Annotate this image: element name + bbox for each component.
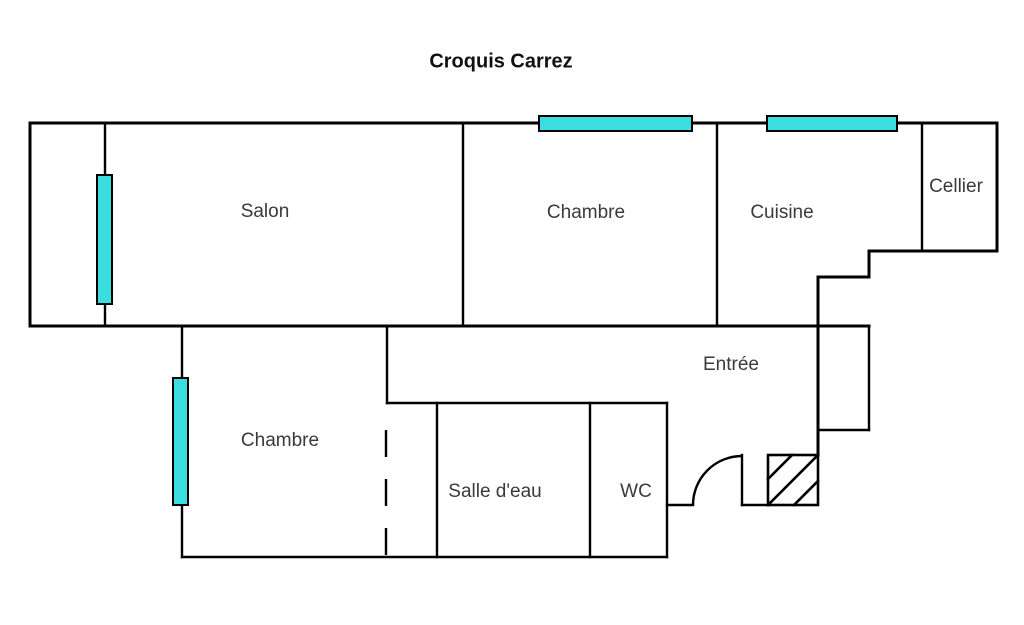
window-cuisine-top	[767, 116, 897, 131]
floor-plan-canvas: Croquis Carrez Salon Chambre Cuisine Cel…	[0, 0, 1024, 625]
room-label-chambre-bottom: Chambre	[241, 430, 319, 452]
window-chambre2-left	[173, 378, 188, 505]
plan-title: Croquis Carrez	[429, 51, 572, 74]
room-label-salon: Salon	[241, 201, 290, 223]
room-label-chambre-top: Chambre	[547, 202, 625, 224]
room-label-wc: WC	[620, 481, 652, 503]
door-swing-arc	[693, 456, 742, 505]
windows	[97, 116, 897, 505]
floor-plan-drawing	[0, 0, 1024, 625]
window-salon-left	[97, 175, 112, 304]
hatched-duct	[768, 455, 818, 505]
room-label-cuisine: Cuisine	[750, 202, 813, 224]
room-label-cellier: Cellier	[929, 176, 983, 198]
room-label-entree: Entrée	[703, 354, 759, 376]
window-chambre-top	[539, 116, 692, 131]
room-label-salle-eau: Salle d'eau	[448, 481, 541, 503]
